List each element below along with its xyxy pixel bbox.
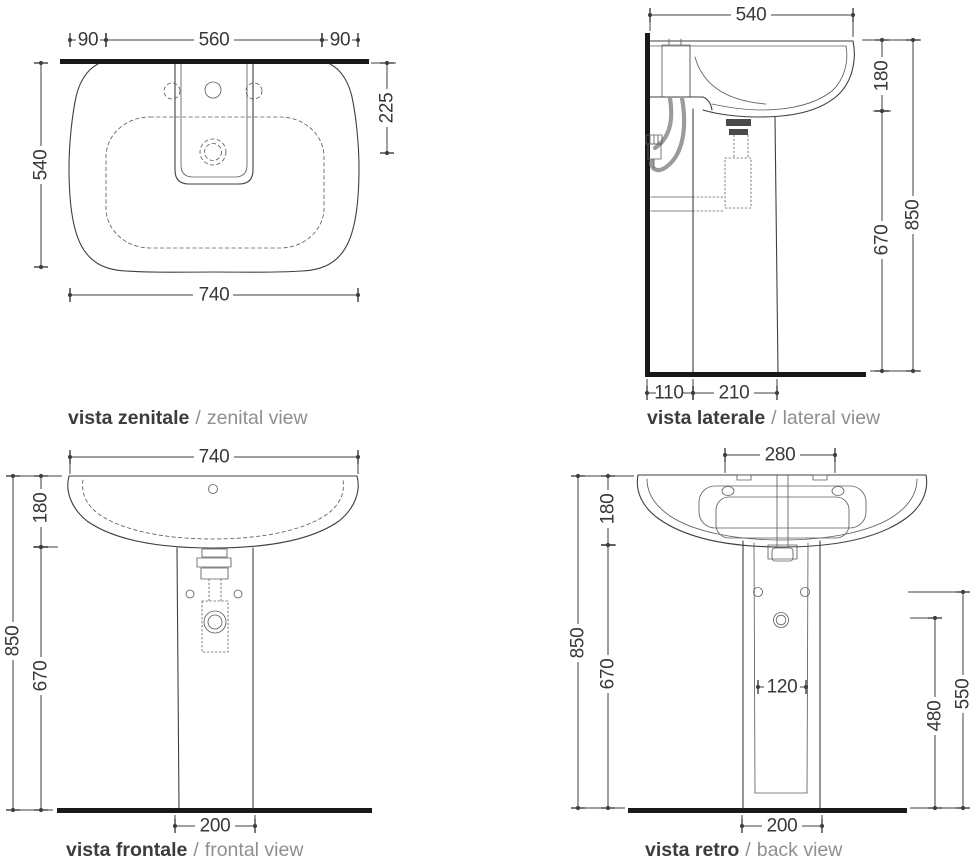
back-view-label: vista retro/back view bbox=[645, 839, 843, 861]
dim-180: 180 bbox=[31, 493, 52, 524]
drain-nut bbox=[197, 558, 231, 567]
basin-outline bbox=[68, 476, 358, 548]
siphon-cap-inner bbox=[208, 615, 222, 629]
zenital-view: 90 560 90 540 225 740 vista zenitale/zen… bbox=[31, 30, 398, 430]
waste-pipe-to-wall bbox=[651, 197, 693, 211]
dim-850: 850 bbox=[3, 626, 24, 657]
dim-90-right: 90 bbox=[330, 30, 351, 51]
dim-225: 225 bbox=[377, 93, 398, 124]
siphon-body-hidden bbox=[725, 158, 751, 208]
back-recess-outer bbox=[699, 486, 866, 528]
dim-550: 550 bbox=[953, 679, 974, 710]
dim-670: 670 bbox=[872, 225, 893, 256]
siphon-body-hidden bbox=[202, 601, 228, 652]
zenital-dimensions: 90 560 90 540 225 740 bbox=[31, 30, 398, 306]
lateral-view: 540 180 670 850 110 210 vista laterale/l… bbox=[645, 5, 924, 430]
frontal-view: 740 180 670 850 200 vista frontale/front… bbox=[3, 447, 373, 862]
pedestal-back bbox=[743, 541, 820, 808]
hose-1 bbox=[655, 98, 671, 148]
basin-inner-rim-hidden bbox=[106, 117, 324, 248]
drain-flange-upper bbox=[726, 119, 751, 126]
tap-deck-inner bbox=[181, 64, 247, 177]
fixing-hole-right bbox=[234, 590, 242, 598]
faucet-hole bbox=[205, 82, 221, 98]
dim-120: 120 bbox=[767, 677, 798, 698]
mounting-slot-right bbox=[813, 475, 827, 480]
back-dimensions: 280 180 670 850 550 480 120 bbox=[568, 445, 974, 837]
drain-hole-inner bbox=[205, 144, 222, 161]
fixing-bolt-left bbox=[754, 588, 763, 597]
dim-180: 180 bbox=[872, 61, 893, 92]
basin-outer-outline bbox=[69, 64, 359, 272]
dim-850: 850 bbox=[903, 200, 924, 231]
dim-480: 480 bbox=[925, 701, 946, 732]
drain-tailpiece bbox=[202, 549, 227, 557]
drawing-canvas: 90 560 90 540 225 740 vista zenitale/zen… bbox=[0, 0, 979, 868]
frontal-dimensions: 740 180 670 850 200 bbox=[3, 447, 359, 837]
waste-outlet-outer bbox=[774, 613, 789, 628]
dim-210: 210 bbox=[719, 383, 750, 404]
dim-540: 540 bbox=[31, 150, 52, 181]
valve-knurling bbox=[650, 135, 658, 144]
tap-body bbox=[662, 45, 690, 97]
fixing-hole-left bbox=[186, 590, 194, 598]
basin-floor-curve bbox=[695, 57, 766, 104]
waste-pipe-hidden bbox=[693, 197, 725, 211]
zenital-view-label: vista zenitale/zenital view bbox=[68, 407, 309, 429]
mounting-slot-left bbox=[737, 475, 751, 480]
frontal-view-label: vista frontale/frontal view bbox=[66, 839, 304, 861]
washbasin-technical-drawing: 90 560 90 540 225 740 vista zenitale/zen… bbox=[0, 0, 979, 868]
dim-110: 110 bbox=[654, 383, 683, 404]
lateral-dimensions: 540 180 670 850 110 210 bbox=[647, 5, 924, 404]
pedestal-inner-left bbox=[754, 543, 755, 793]
dim-740: 740 bbox=[199, 447, 230, 468]
dim-200: 200 bbox=[200, 816, 231, 837]
back-view: 280 180 670 850 550 480 120 bbox=[568, 445, 974, 862]
back-recess-inner bbox=[716, 497, 849, 538]
dim-670: 670 bbox=[31, 661, 52, 692]
dim-560: 560 bbox=[199, 30, 230, 51]
waste-outlet-inner bbox=[776, 615, 786, 625]
optional-hole-left bbox=[164, 83, 180, 99]
drain-hole-outer bbox=[200, 139, 226, 165]
optional-hole-right bbox=[246, 83, 262, 99]
faucet-hole bbox=[209, 485, 218, 494]
floor-bar bbox=[645, 372, 866, 377]
drain-coupling bbox=[201, 568, 228, 579]
drain-flange-lower bbox=[729, 129, 748, 135]
wall-bar bbox=[645, 33, 650, 377]
drain-tailpipe-hidden bbox=[734, 135, 748, 158]
lateral-view-label: vista laterale/lateral view bbox=[647, 407, 881, 429]
bowl-profile-outer bbox=[703, 41, 854, 117]
dim-670: 670 bbox=[598, 659, 619, 690]
basin-inner-rim-hidden bbox=[83, 480, 344, 539]
pedestal-inner-right bbox=[807, 543, 808, 793]
basin-inner-contour bbox=[647, 479, 917, 540]
dim-180: 180 bbox=[598, 494, 619, 525]
floor-bar bbox=[628, 808, 907, 813]
fixing-hole-right bbox=[832, 487, 844, 496]
bowl-profile-inner bbox=[712, 46, 847, 110]
tap-spout-marks bbox=[669, 39, 681, 45]
floor-bar bbox=[57, 808, 372, 813]
dim-740: 740 bbox=[199, 285, 230, 306]
dim-90-left: 90 bbox=[78, 30, 99, 51]
dim-850: 850 bbox=[568, 628, 589, 659]
drain-pipe-hidden bbox=[209, 579, 221, 601]
wall-section-bar bbox=[60, 59, 369, 64]
siphon-cap-outer bbox=[204, 611, 226, 633]
dim-280: 280 bbox=[765, 445, 796, 466]
drain-assembly bbox=[186, 549, 242, 652]
fixing-hole-left bbox=[722, 487, 734, 496]
dim-540: 540 bbox=[736, 5, 767, 26]
pedestal-front-edge bbox=[775, 117, 778, 372]
pedestal-left-edge bbox=[177, 548, 179, 808]
dim-200: 200 bbox=[767, 816, 798, 837]
